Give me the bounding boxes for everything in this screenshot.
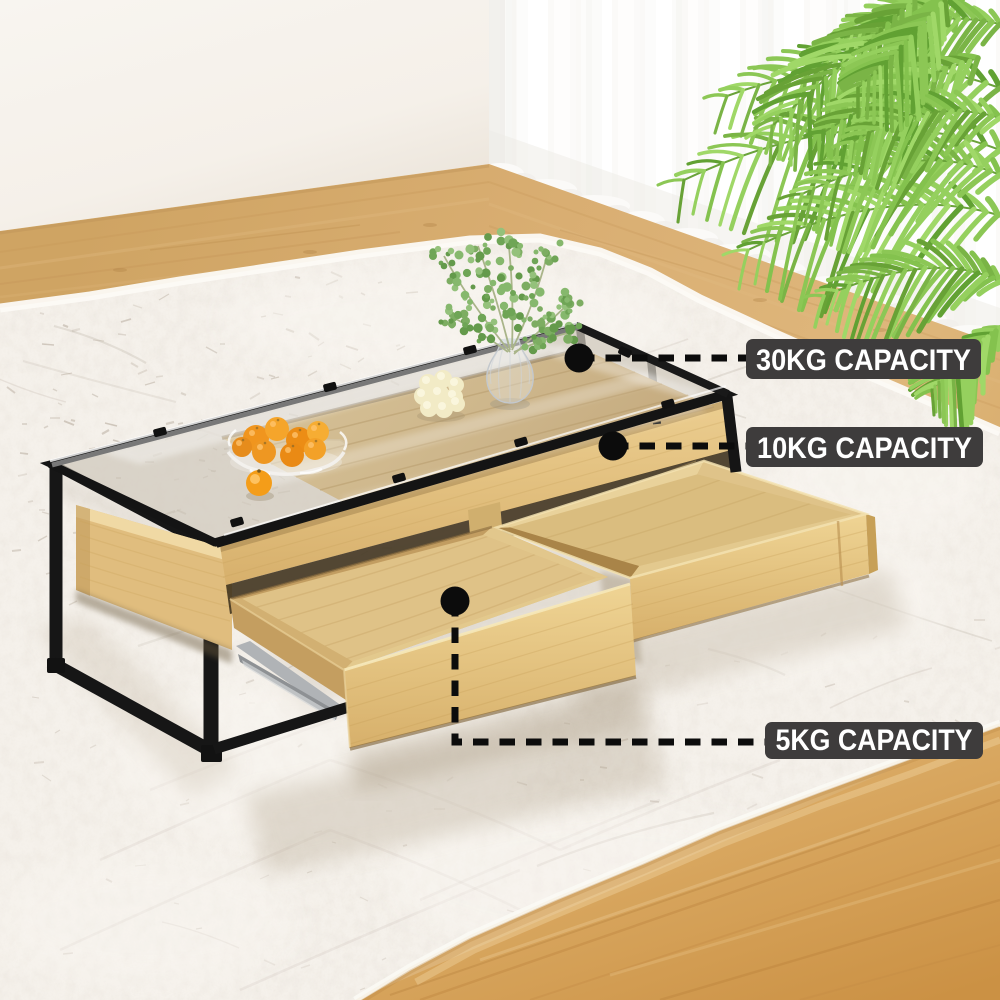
svg-text:10KG CAPACITY: 10KG CAPACITY: [757, 432, 972, 465]
svg-text:30KG CAPACITY: 30KG CAPACITY: [756, 344, 971, 377]
svg-text:5KG CAPACITY: 5KG CAPACITY: [776, 724, 973, 757]
